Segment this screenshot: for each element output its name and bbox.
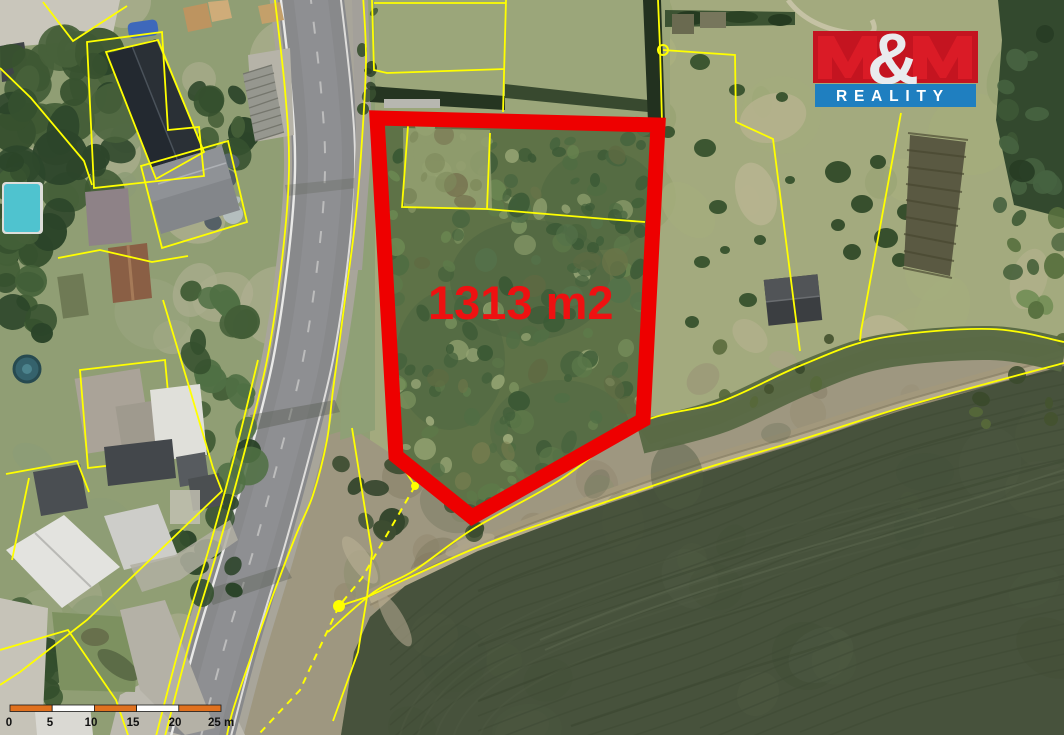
svg-text:1313 m2: 1313 m2 — [428, 276, 614, 329]
svg-text:20: 20 — [169, 717, 182, 729]
svg-text:0: 0 — [6, 717, 12, 729]
svg-text:5: 5 — [47, 717, 54, 729]
svg-text:REALITY: REALITY — [836, 88, 950, 105]
svg-text:10: 10 — [85, 717, 98, 729]
svg-text:25 m: 25 m — [208, 717, 234, 729]
svg-text:15: 15 — [127, 717, 140, 729]
